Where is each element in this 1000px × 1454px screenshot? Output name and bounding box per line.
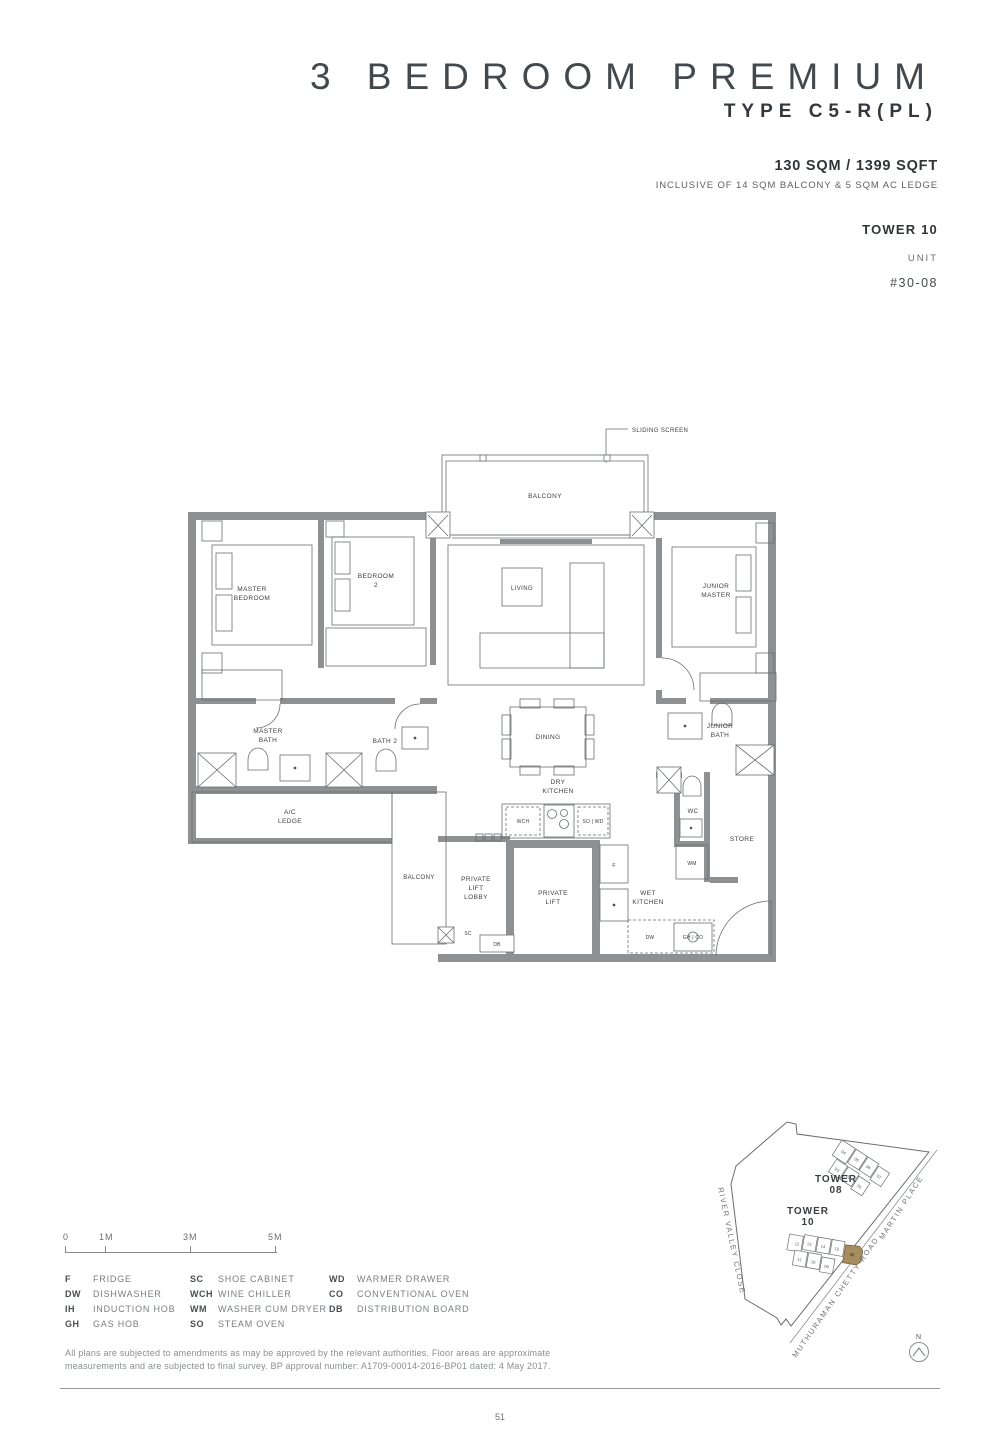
scale-tick-1m: 1M [99,1232,114,1242]
bath2-fixtures [326,727,428,787]
road-river-valley-close: RIVER VALLEY CLOSE [716,1187,747,1295]
bedroom2-label: BEDROOM [358,573,394,580]
north-indicator: N [910,1334,929,1362]
bath2-label: BATH 2 [373,738,398,745]
living-label: LIVING [511,586,533,592]
scale-tick-0: 0 [63,1232,69,1242]
so-wd-label: SO | WD [582,819,603,825]
ac-ledge-outline [192,792,392,842]
db-label: DB [493,942,501,948]
north-label: N [916,1334,922,1341]
wardrobes [202,628,776,701]
junior-bath-label: JUNIOR [707,723,734,730]
unit-area-note: INCLUSIVE OF 14 SQM BALCONY & 5 SQM AC L… [656,180,938,191]
unit-caption: UNIT [908,253,938,264]
legend: FFRIDGE DWDISHWASHER IHINDUCTION HOB GHG… [65,1272,625,1338]
svg-text:KITCHEN: KITCHEN [542,788,573,795]
balcony-label: BALCONY [528,493,562,500]
scale-bar: 0 1M 3M 5M [65,1232,277,1260]
column-left [426,512,450,538]
north-circle [910,1343,929,1362]
north-arrow-icon [913,1348,925,1356]
wc-label: WC [688,809,699,815]
tower10-label: TOWER [787,1206,829,1217]
sliding-screen-label: SLIDING SCREEN [632,428,688,434]
wch-label: WCH [517,819,530,825]
tower08-label: TOWER [815,1174,857,1185]
svg-text:MASTER: MASTER [701,592,731,599]
scale-bar-line [65,1252,277,1253]
wm-label: WM [687,861,696,867]
rear-balcony-outline [392,792,446,944]
unit-type: TYPE C5-R(PL) [724,101,938,123]
private-lift-label: PRIVATE [538,890,568,897]
site-map: 04 05 06 07 03 02 01 TOWER 08 12 13 14 1… [690,1090,980,1380]
unit-area: 130 SQM / 1399 SQFT [775,158,939,174]
balcony-top: BALCONY [442,455,648,535]
ac-ledge-label: A/C [284,809,296,816]
wet-kitchen-label: WET [640,890,656,897]
master-bath-fixtures [198,748,310,787]
dining-label: DINING [535,734,560,741]
dry-kitchen-label: DRY [551,779,566,786]
rear-balcony-label: BALCONY [403,875,434,881]
store-label: STORE [730,836,755,843]
floor-plan: SLIDING SCREEN BALCONY [180,415,800,985]
legend-column-3: WDWARMER DRAWER COCONVENTIONAL OVEN DBDI… [329,1272,469,1317]
sc-label: SC [464,931,472,937]
sliding-screen-callout: SLIDING SCREEN [606,428,688,463]
dw-label: DW [646,935,655,941]
svg-text:LIFT: LIFT [469,885,484,892]
disclaimer: All plans are subjected to amendments as… [65,1347,605,1373]
page-number: 51 [0,1412,1000,1422]
fridge-label: F [612,863,615,869]
living-furniture [448,545,644,685]
scale-tick-5m: 5M [268,1232,283,1242]
unit-number: #30-08 [890,276,938,290]
master-bath-label: MASTER [253,728,283,735]
svg-text:BEDROOM: BEDROOM [234,595,270,602]
svg-text:LEDGE: LEDGE [278,818,302,825]
floorplan-page: 3 BEDROOM PREMIUM TYPE C5-R(PL) 130 SQM … [0,0,1000,1454]
svg-text:BATH: BATH [259,737,277,744]
svg-text:LIFT: LIFT [546,899,561,906]
footer-divider [60,1388,940,1389]
page-title: 3 BEDROOM PREMIUM [310,56,938,98]
scale-tick-3m: 3M [183,1232,198,1242]
gh-co-label: GH | CO [683,935,703,941]
lobby-items [438,927,514,952]
legend-column-1: FFRIDGE DWDISHWASHER IHINDUCTION HOB GHG… [65,1272,175,1332]
svg-text:10: 10 [801,1217,814,1228]
private-lift-lobby-label: PRIVATE [461,876,491,883]
site-boundary [731,1122,929,1326]
column-right [630,512,654,538]
legend-column-2: SCSHOE CABINET WCHWINE CHILLER WMWASHER … [190,1272,327,1332]
junior-master-label: JUNIOR [703,583,730,590]
svg-text:BATH: BATH [711,732,729,739]
master-bedroom-label: MASTER [237,586,267,593]
svg-text:KITCHEN: KITCHEN [632,899,663,906]
svg-text:08: 08 [829,1185,842,1196]
svg-text:LOBBY: LOBBY [464,894,488,901]
road-martin-place: MARTIN PLACE [877,1174,925,1241]
tower-label: TOWER 10 [862,222,938,237]
svg-text:2: 2 [374,582,378,589]
